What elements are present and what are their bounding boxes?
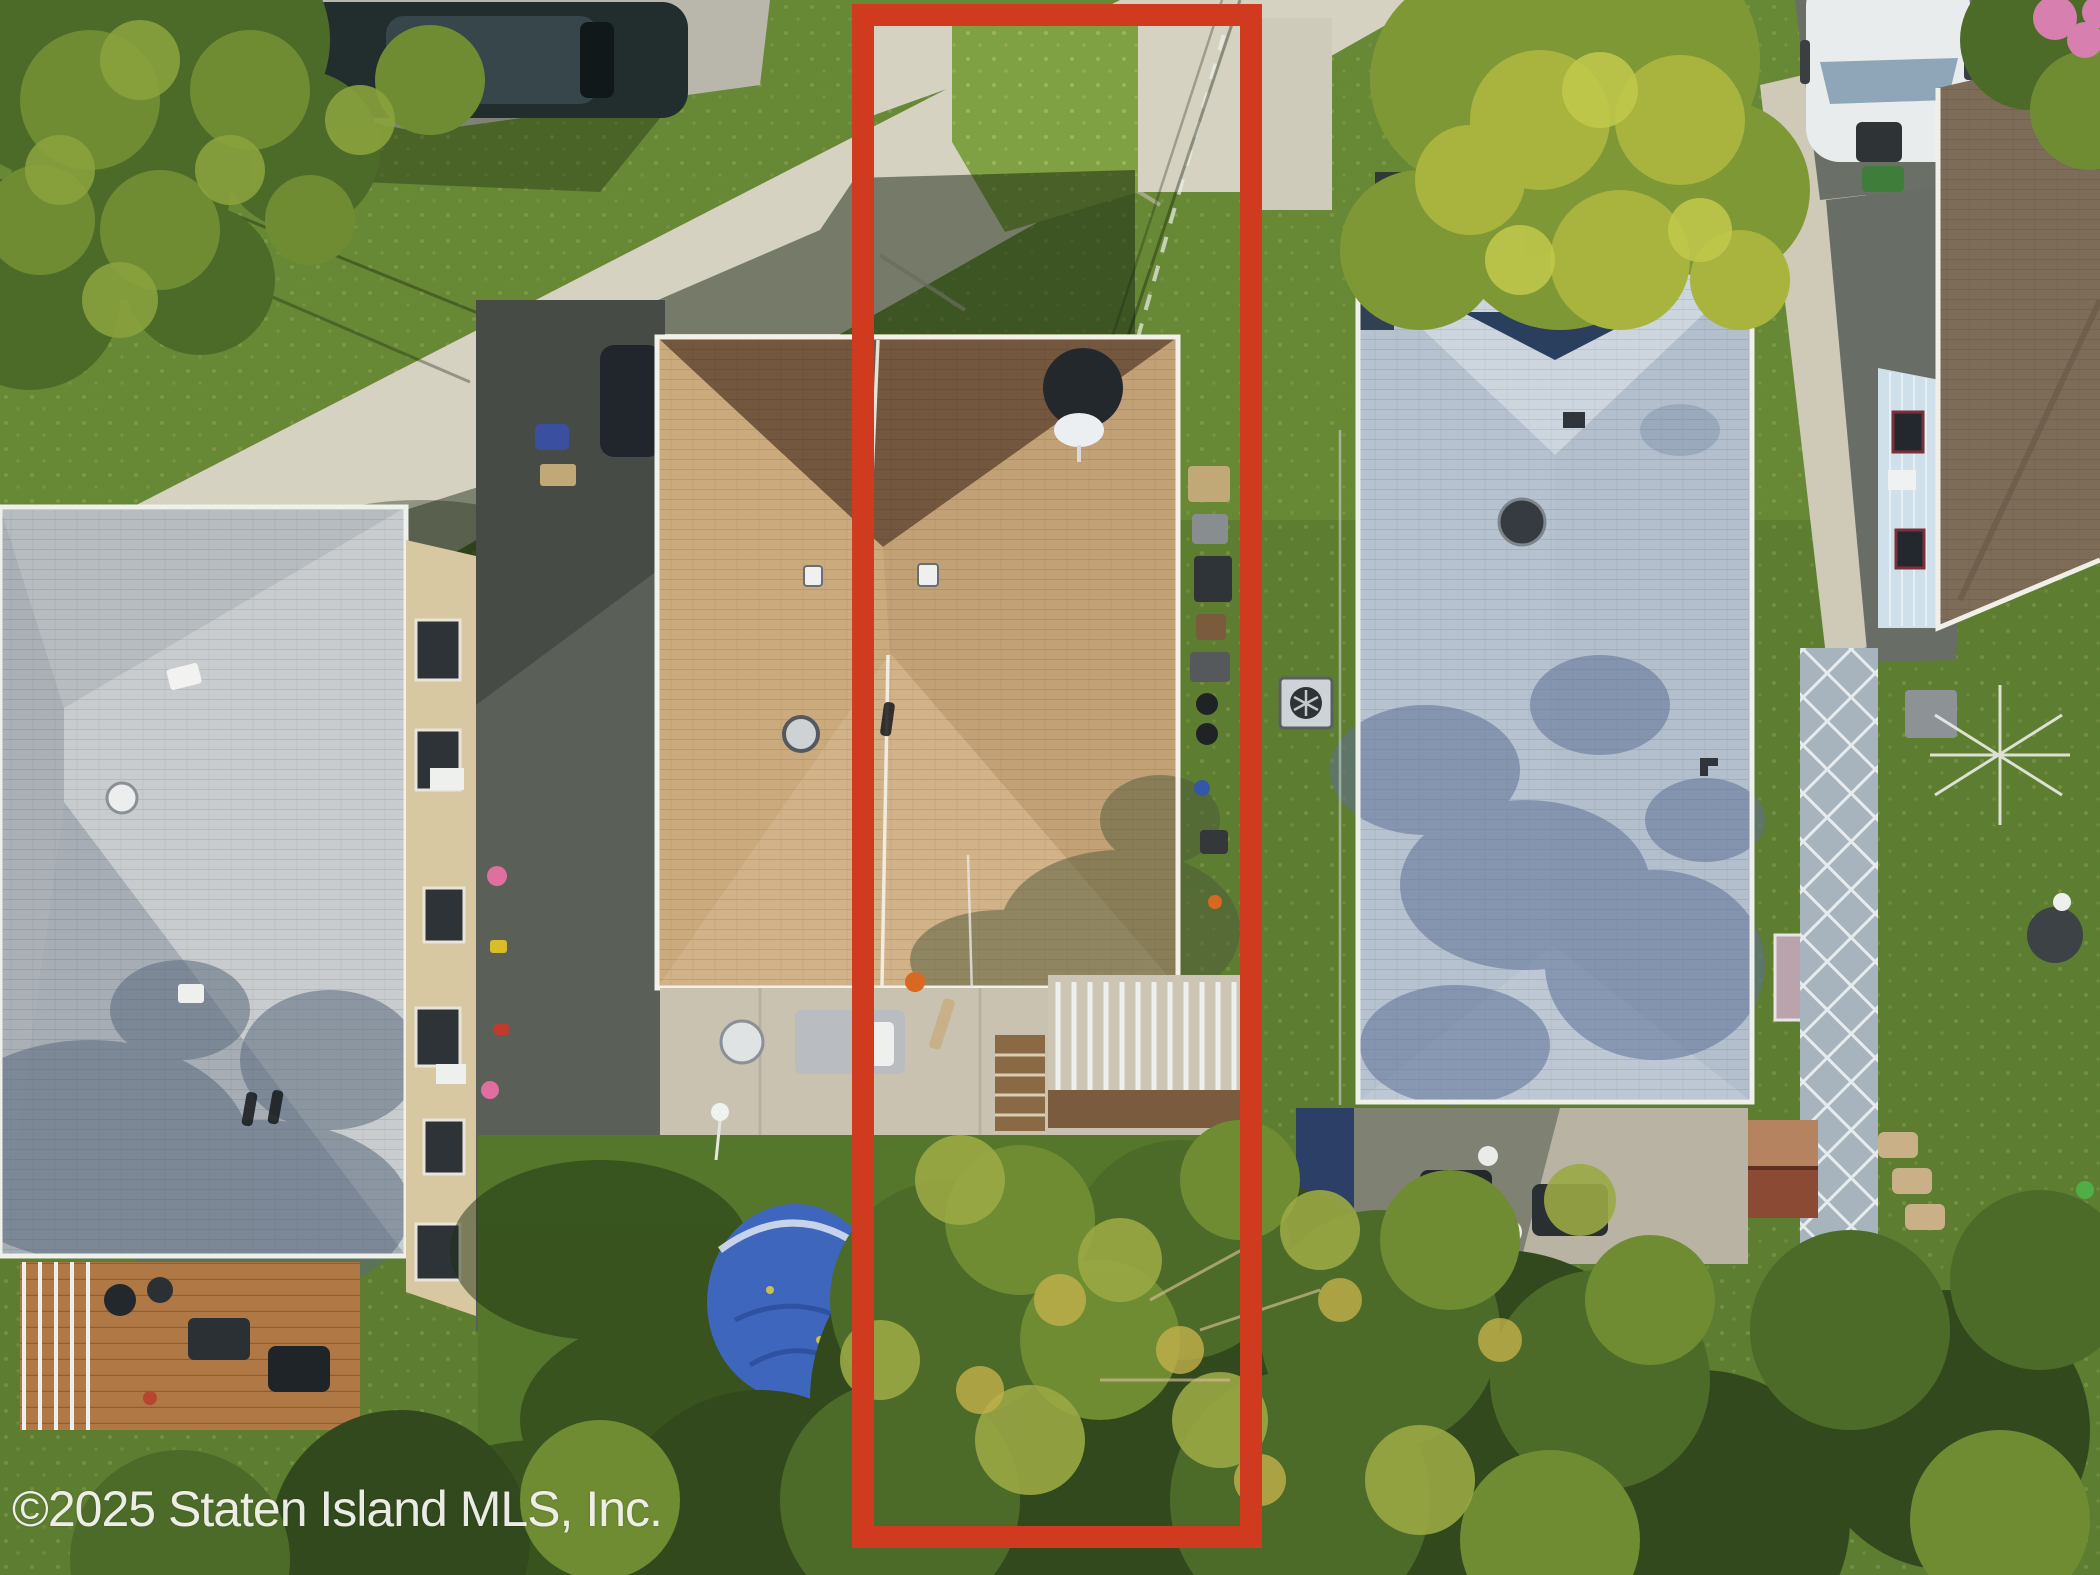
deck-table (188, 1318, 250, 1360)
red-item (143, 1391, 157, 1405)
pink-toy (481, 1081, 499, 1099)
window-ac-unit (436, 1064, 466, 1084)
photo-canvas: ©2025 Staten Island MLS, Inc. (0, 0, 2100, 1575)
deck-stairs (995, 1035, 1045, 1131)
rear-deck-left-house (20, 1262, 360, 1430)
suv-windshield (580, 22, 614, 98)
car-wheel (1800, 40, 1810, 84)
parked-car-partial (600, 345, 662, 457)
window-ac-unit (1888, 470, 1916, 490)
small-table (1478, 1146, 1498, 1166)
leaf-on-tarp (766, 1286, 774, 1294)
deck-understructure (1048, 1090, 1240, 1128)
subject-house (657, 337, 1240, 1010)
pink-toy (487, 866, 507, 886)
patio-table (2027, 907, 2083, 963)
roof-vent (918, 564, 938, 586)
pumpkin (905, 972, 925, 992)
yellow-toy (490, 940, 507, 953)
deck-chair (147, 1277, 173, 1303)
lawn-ornament (711, 1103, 729, 1121)
walkway-right-of-lot (1243, 18, 1332, 210)
lounge-chair (862, 1022, 894, 1066)
garden-structure (1905, 690, 1957, 738)
neighbor-side-wall (1878, 368, 1940, 628)
kettle (2053, 893, 2071, 911)
aerial-photo (0, 0, 2100, 1575)
green-bottle (2076, 1181, 2094, 1199)
round-vent (1499, 499, 1545, 545)
trash-bins (1856, 122, 1904, 192)
ac-condenser (1280, 678, 1332, 728)
window-ac-unit (430, 768, 464, 790)
small-chimney (1563, 412, 1585, 428)
deck-chair (104, 1284, 136, 1316)
window (1896, 530, 1924, 568)
round-vent (107, 783, 137, 813)
cardboard-box (540, 464, 576, 486)
mls-watermark: ©2025 Staten Island MLS, Inc. (12, 1480, 662, 1538)
round-vent (784, 717, 818, 751)
water-heater-tank (721, 1021, 763, 1063)
window (1893, 412, 1923, 452)
roof-vent (178, 984, 204, 1003)
roof-vent (804, 566, 822, 586)
red-toy (494, 1024, 509, 1035)
grill (268, 1346, 330, 1392)
blue-bin (535, 424, 569, 450)
